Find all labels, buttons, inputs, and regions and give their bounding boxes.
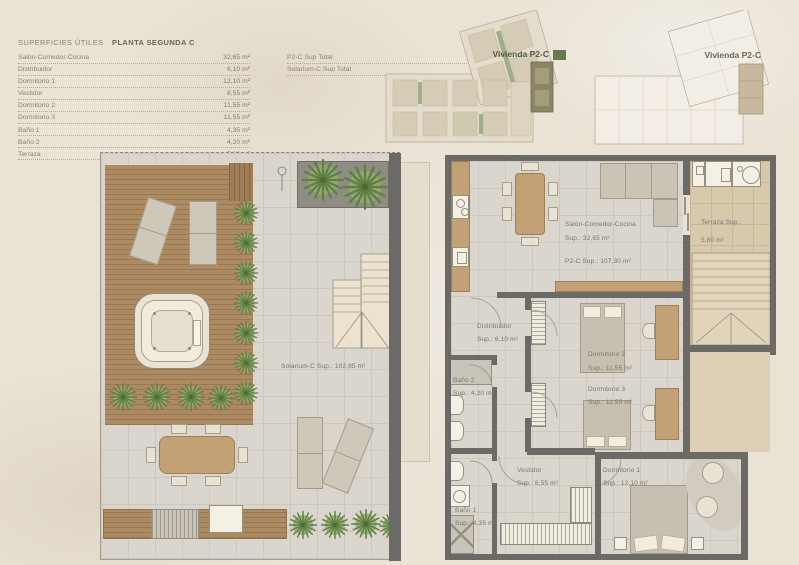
- wall: [525, 418, 531, 452]
- key-plan-line: Vivienda P2-C: [593, 10, 795, 150]
- room-area: 6,10 m²: [227, 66, 250, 73]
- wall: [770, 155, 776, 355]
- key-plan-unit-label: Vivienda P2-C: [704, 50, 761, 60]
- room-label-distribuidor: Distribuidor: [477, 323, 512, 330]
- room-area: 11,55 m²: [224, 114, 250, 121]
- table-row: Dormitorio 112,10 m²: [18, 78, 250, 88]
- sliding-door: [687, 213, 689, 231]
- wall: [683, 345, 776, 352]
- room-label-bano2: Baño 2: [453, 377, 475, 384]
- room-sup-dorm2: Sup.: 11,55 m²: [588, 365, 632, 372]
- plant-icon: [234, 231, 257, 254]
- wall: [492, 454, 497, 461]
- key-plan-rendered: Vivienda P2-C: [383, 10, 588, 148]
- page-title-floor: PLANTA SEGUNDA C: [112, 38, 195, 47]
- room-area: 11,55 m²: [224, 102, 250, 109]
- plant-icon: [352, 510, 380, 538]
- room-label: Dormitorio 1: [18, 78, 55, 85]
- wall: [595, 452, 748, 459]
- terrace-staircase: [692, 253, 770, 345]
- table-row: Vestidor8,55 m²: [18, 90, 250, 100]
- wall: [741, 452, 748, 560]
- room-label: Salón-Comedor-Cocina: [18, 54, 89, 61]
- room-sup-dorm1: Sup.: 12,10 m²: [603, 480, 648, 487]
- wall: [690, 155, 776, 161]
- solarium-area-label: Solarium-C Sup.: 102,85 m²: [281, 363, 365, 370]
- plant-icon: [290, 512, 317, 539]
- room-label-bano1: Baño 1: [455, 507, 477, 514]
- key-plan-unit-label: Vivienda P2-C: [492, 49, 549, 59]
- wall: [445, 355, 497, 360]
- room-sup-terraza: 5,80 m²: [701, 237, 724, 244]
- unit-total-label: P2-C Sup.: 107,30 m²: [565, 258, 631, 265]
- wall: [492, 355, 497, 365]
- wall: [527, 448, 595, 455]
- room-label-dorm1: Dormitorio 1: [603, 467, 640, 474]
- room-area: 4,35 m²: [227, 127, 250, 134]
- room-label-salon: Salón-Comedor-Cocina: [565, 221, 636, 228]
- plant-icon: [234, 321, 257, 344]
- room-label-terraza: Terraza Sup.:: [701, 219, 742, 226]
- room-sup-bano1: Sup.: 4,35 m²: [455, 520, 496, 527]
- table-row: Dormitorio 211,55 m²: [18, 102, 250, 112]
- plan-sheet: SUPERFICIES ÚTILES PLANTA SEGUNDA C Saló…: [0, 0, 799, 565]
- wall: [595, 459, 601, 554]
- plant-icon: [110, 384, 137, 411]
- room-label: Dormitorio 2: [18, 102, 55, 109]
- plant-icon: [234, 291, 257, 314]
- area-table: Salón-Comedor-Cocina32,65 m² Distribuido…: [18, 54, 250, 163]
- plant-icon: [144, 384, 171, 411]
- plant-icon: [234, 261, 257, 284]
- staircase: [333, 254, 391, 348]
- table-row: Dormitorio 311,55 m²: [18, 114, 250, 124]
- solarium-decor: [101, 153, 401, 561]
- outdoor-shower-icon: [278, 167, 286, 191]
- wall: [683, 155, 690, 195]
- room-sup-dorm3: Sup.: 11,55 m²: [588, 399, 632, 406]
- total-label: Solarium-C Sup Total: [287, 66, 351, 73]
- room-sup-vestidor: Sup.: 8,55 m²: [517, 480, 558, 487]
- solarium-wall: [389, 153, 401, 561]
- total-label: P2-C Sup Total: [287, 54, 333, 61]
- wall: [445, 448, 497, 454]
- table-row: Salón-Comedor-Cocina32,65 m²: [18, 54, 250, 64]
- room-area: 32,65 m²: [223, 54, 250, 61]
- room-area: 4,20 m²: [227, 139, 250, 146]
- plant-icon: [343, 165, 386, 208]
- room-sup-bano2: Sup.: 4,20 m²: [453, 390, 494, 397]
- wall: [445, 155, 690, 161]
- room-label: Baño 1: [18, 127, 40, 134]
- plant-icon: [178, 384, 205, 411]
- highlighted-unit: [739, 64, 763, 114]
- table-row: Distribuidor6,10 m²: [18, 66, 250, 76]
- solarium-plan: Solarium-C Sup.: 102,85 m²: [100, 152, 400, 560]
- room-label: Distribuidor: [18, 66, 52, 73]
- apartment-plan: Salón-Comedor-Cocina Sup.: 32,65 m² P2-C…: [445, 155, 790, 560]
- plant-icon: [322, 512, 349, 539]
- page-title-main: SUPERFICIES ÚTILES: [18, 38, 104, 47]
- room-sup-distribuidor: Sup.: 6,10 m²: [477, 336, 518, 343]
- room-label: Terraza: [18, 151, 41, 158]
- room-area: 12,10 m²: [223, 78, 250, 85]
- neighbour-roof-outline: [399, 162, 430, 462]
- room-label: Dormitorio 3: [18, 114, 55, 121]
- room-label-dorm3: Dormitorio 3: [588, 386, 625, 393]
- plant-icon: [234, 201, 257, 224]
- plant-icon: [209, 386, 234, 411]
- room-label-vestidor: Vestidor: [517, 467, 542, 474]
- plant-icon: [234, 381, 257, 404]
- room-label: Baño 2: [18, 139, 40, 146]
- wall: [525, 298, 531, 310]
- page-title: SUPERFICIES ÚTILES PLANTA SEGUNDA C: [18, 38, 195, 47]
- room-label: Vestidor: [18, 90, 43, 97]
- table-row: Baño 24,20 m²: [18, 139, 250, 149]
- wall: [525, 336, 531, 392]
- wall: [445, 554, 748, 560]
- room-sup-salon: Sup.: 32,65 m²: [565, 235, 610, 242]
- room-label-dorm2: Dormitorio 2: [588, 351, 625, 358]
- table-row: Baño 14,35 m²: [18, 127, 250, 137]
- plant-icon: [234, 351, 257, 374]
- room-area: 8,55 m²: [227, 90, 250, 97]
- wall: [492, 483, 497, 554]
- sliding-door: [684, 197, 686, 215]
- plant-icon: [303, 160, 343, 200]
